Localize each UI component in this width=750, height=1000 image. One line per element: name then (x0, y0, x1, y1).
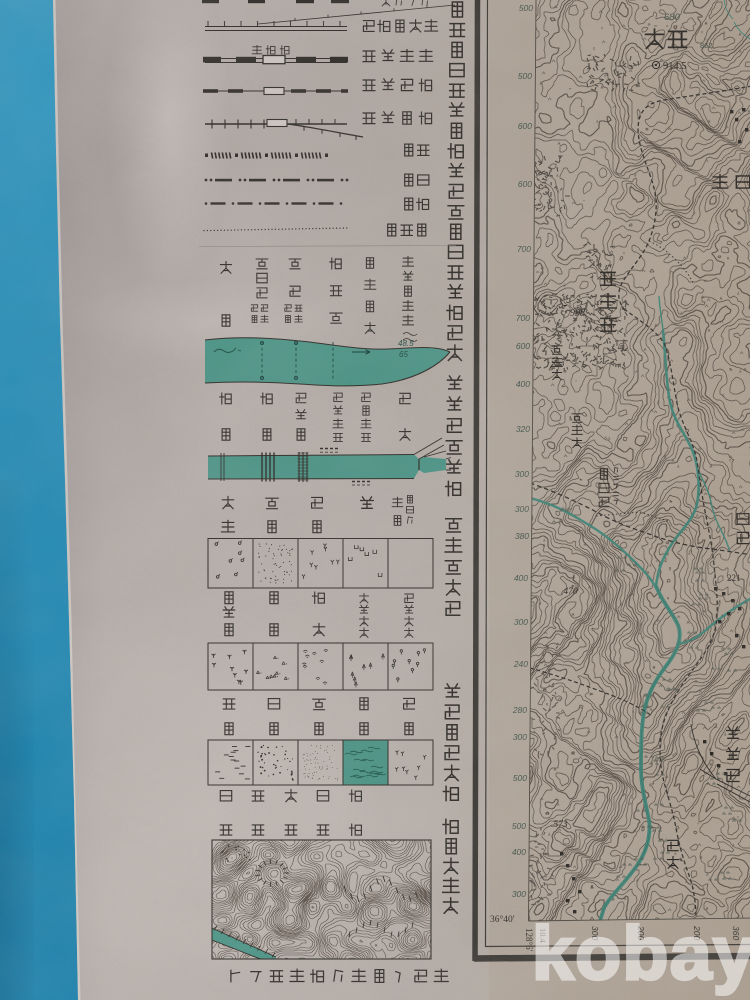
svg-text:320: 320 (516, 424, 530, 434)
svg-text:600: 600 (516, 341, 530, 351)
svg-text:380: 380 (515, 531, 529, 541)
svg-text:600: 600 (518, 179, 532, 189)
svg-text:914.5: 914.5 (663, 61, 687, 72)
svg-text:998: 998 (570, 308, 585, 319)
svg-text:.573: .573 (551, 820, 568, 830)
svg-text:300: 300 (515, 469, 529, 479)
svg-text:300: 300 (515, 504, 529, 514)
svg-text:680: 680 (664, 12, 681, 23)
svg-text:48.5: 48.5 (398, 339, 414, 348)
svg-text:221: 221 (727, 573, 741, 583)
svg-text:400: 400 (514, 573, 528, 583)
svg-text:300: 300 (513, 732, 527, 742)
svg-text:65: 65 (399, 350, 408, 359)
svg-text:500: 500 (518, 71, 532, 81)
svg-text:600: 600 (518, 121, 532, 131)
svg-text:300: 300 (514, 617, 528, 627)
svg-text:500: 500 (512, 821, 526, 831)
svg-text:500: 500 (513, 773, 527, 783)
svg-text:700: 700 (516, 313, 530, 323)
svg-text:700: 700 (517, 244, 531, 254)
svg-text:400: 400 (516, 379, 530, 389)
svg-text:240: 240 (513, 659, 528, 669)
svg-text:400: 400 (512, 847, 526, 857)
svg-text:300: 300 (512, 889, 526, 899)
svg-text:280: 280 (512, 705, 527, 715)
svg-text:.470: .470 (561, 587, 578, 597)
svg-text:862: 862 (700, 41, 713, 50)
svg-text:36°40′: 36°40′ (490, 914, 515, 925)
svg-text:500: 500 (519, 3, 533, 13)
